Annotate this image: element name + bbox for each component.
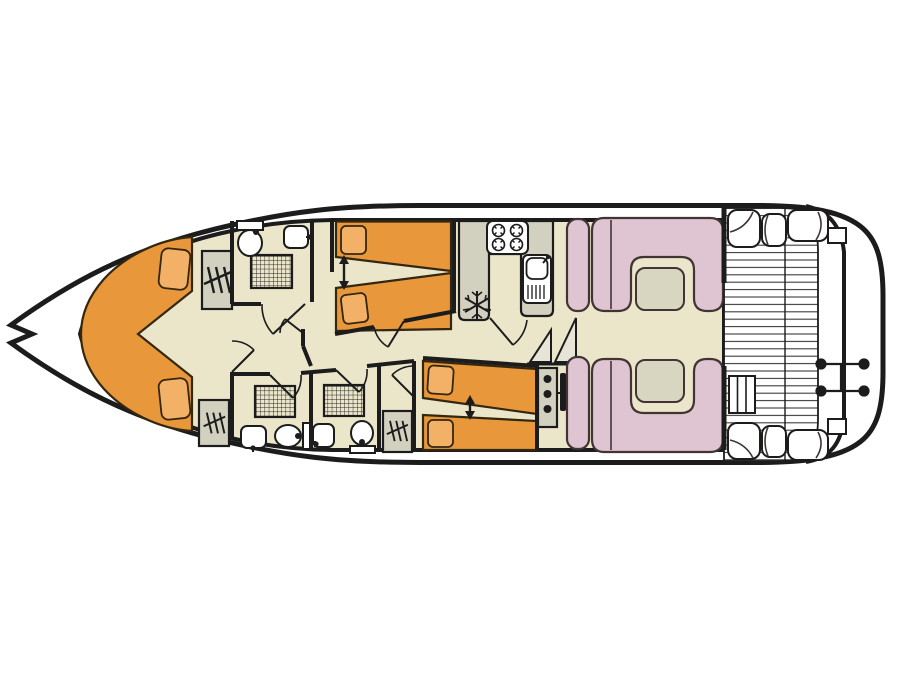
platform-step-top [828,228,846,243]
deck-plan-svg [0,0,900,675]
boat-floor-plan [0,0,900,675]
shower [324,385,364,416]
platform-step-bottom [828,419,846,434]
wardrobe-aft [383,411,412,452]
wardrobe-bow-top [202,251,232,309]
pillow [428,420,453,447]
dinette-table [636,268,684,310]
wardrobe-bow-bottom [199,400,229,446]
side-seat [567,219,589,311]
washbasin [313,424,334,447]
pillow [341,226,366,254]
shower [255,386,295,417]
toilet [350,421,375,453]
pillow [340,293,368,325]
four-burner-hob [487,221,528,254]
pillow [427,365,454,395]
side-seat [567,357,589,449]
washbasin [241,426,266,452]
aft-deck [724,206,869,462]
toilet [275,423,312,449]
steering-wheel [560,373,566,411]
gauge-dot [544,375,552,383]
gauge-dot [544,405,552,413]
pillow [158,248,191,291]
pillow [158,378,191,421]
sink-with-drainer [523,255,551,303]
shower [251,255,292,288]
boarding-ladder [729,376,755,413]
dinette-table [636,360,684,402]
toilet [237,221,263,256]
gauge-dot [544,390,552,398]
